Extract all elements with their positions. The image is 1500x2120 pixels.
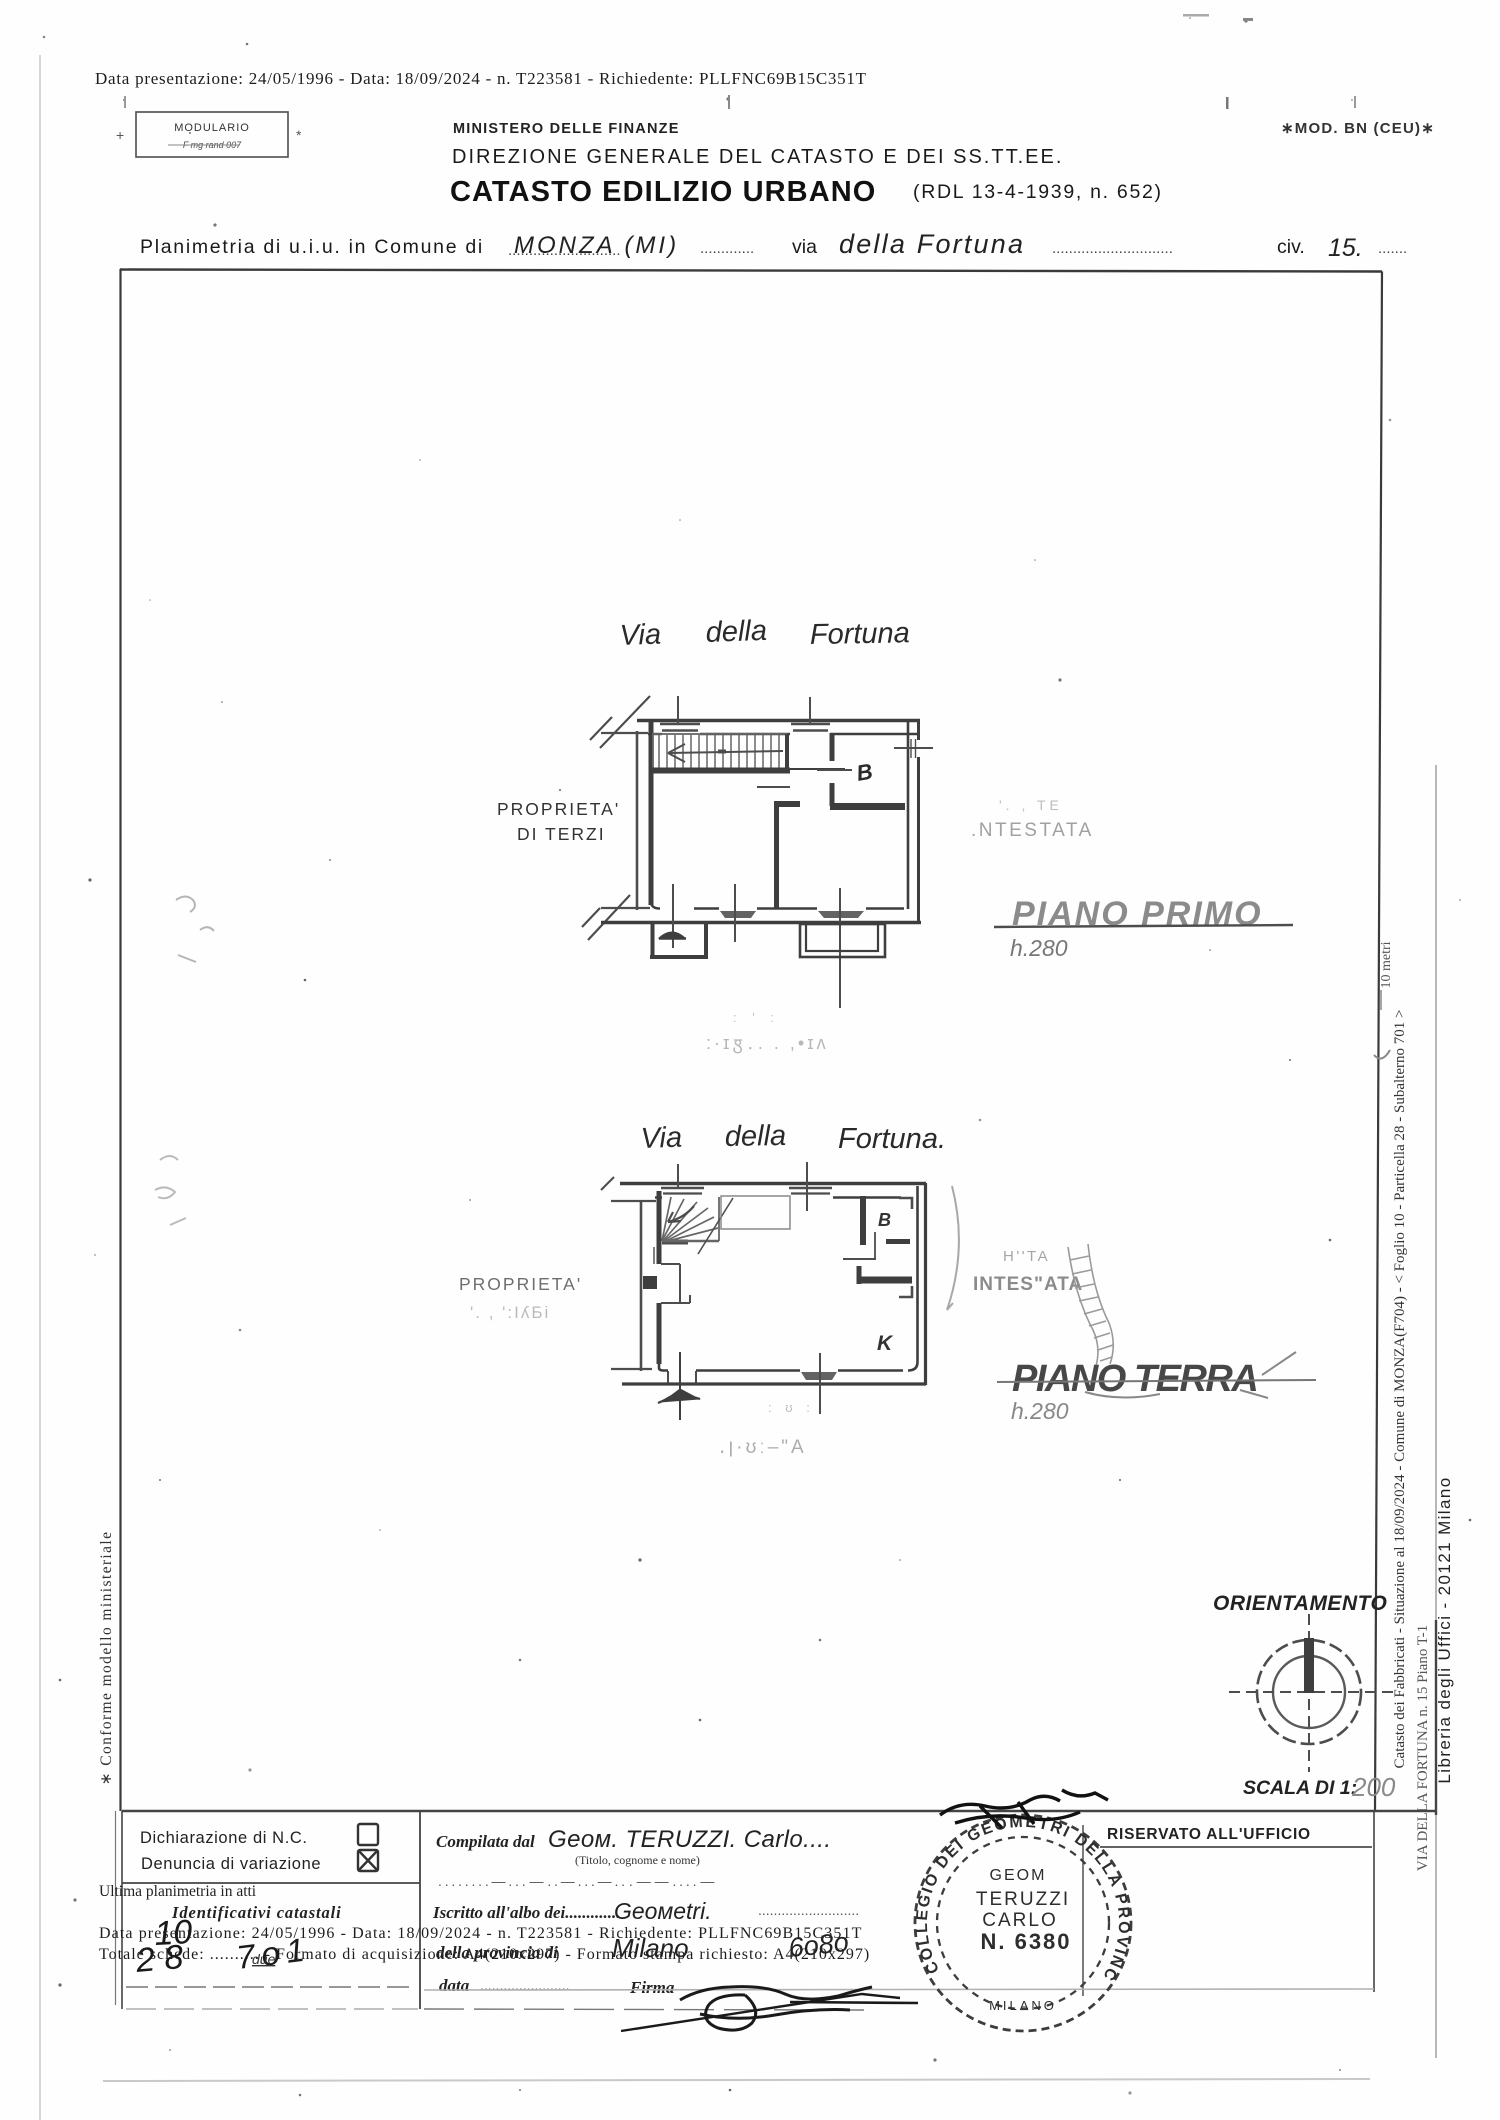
svg-text:Iscritto all'albo deі.........: Iscritto all'albo deі............. <box>432 1903 620 1922</box>
svg-text:Via: Via <box>619 619 661 652</box>
svg-text:della: della <box>725 1120 787 1153</box>
svg-text:PROPRIETA': PROPRIETA' <box>497 799 620 819</box>
svg-text:: ' :: : ' : <box>733 1010 780 1025</box>
svg-text:MINISTERO DELLE FINANZE: MINISTERO DELLE FINANZE <box>453 121 680 137</box>
svg-text:della provincia di: della provincia di <box>436 1943 558 1962</box>
svg-text:Ultima planimetria in atti: Ultima planimetria in atti <box>99 1883 257 1900</box>
svg-text:․ן·ʊː‒"A: ․ן·ʊː‒"A <box>719 1437 807 1458</box>
svg-text::·ɪꟑ․. . ,•ɪʌ: :·ɪꟑ․. . ,•ɪʌ <box>706 1033 829 1054</box>
svg-text:15.: 15. <box>1328 234 1363 262</box>
svg-text:. . . . . . . . — . . . — . .: . . . . . . . . — . . . — . . — . . . — … <box>438 1873 714 1889</box>
svg-text:data: data <box>439 1976 470 1995</box>
svg-text:.............: ............. <box>700 240 754 257</box>
svg-text:Milano: Milano <box>612 1933 689 1963</box>
svg-text:Gеом. TERUZZI. Carlo....: Gеом. TERUZZI. Carlo.... <box>548 1826 831 1853</box>
svg-text:CARLO: CARLO <box>982 1910 1057 1931</box>
svg-text:N. 6380: N. 6380 <box>980 1929 1071 1954</box>
svg-text:(RDL 13-4-1939, n. 652): (RDL 13-4-1939, n. 652) <box>913 181 1163 203</box>
svg-text:DI TERZI: DI TERZI <box>517 824 606 844</box>
svg-text:∗MOD. BN (CEU)∗: ∗MOD. BN (CEU)∗ <box>1281 120 1435 137</box>
svg-text:.......: ....... <box>1378 240 1407 257</box>
svg-text:Compilata dal: Compilata dal <box>436 1832 535 1851</box>
svg-text:Data presentazione: 24/05/1996: Data presentazione: 24/05/1996 - Data: 1… <box>99 1925 862 1942</box>
svg-text:Libreria degli Uffici - 20121: Libreria degli Uffici - 20121 Milano <box>1435 1476 1454 1783</box>
svg-text:Fortuna.: Fortuna. <box>838 1123 946 1155</box>
svg-text:della: della <box>705 615 767 649</box>
svg-text:via: via <box>792 236 817 258</box>
svg-text:∗ Conforme modello ministerial: ∗ Conforme modello ministeriale <box>98 1531 115 1786</box>
svg-text:(Titolo, cognome e nome): (Titolo, cognome e nome) <box>575 1853 700 1867</box>
svg-text:PIANO TERRA: PIANO TERRA <box>1012 1358 1257 1400</box>
svg-text:'. , TE: '. , TE <box>999 797 1063 813</box>
svg-text:Catasto dei Fabbricati - Situa: Catasto dei Fabbricati - Situazione al 1… <box>1392 1010 1408 1769</box>
svg-text:due: due <box>252 1951 276 1967</box>
svg-text:Via: Via <box>640 1122 682 1155</box>
svg-text:MODULARIO: MODULARIO <box>174 122 250 134</box>
svg-text:PROPRIETA': PROPRIETA' <box>459 1274 582 1294</box>
svg-text:200: 200 <box>1351 1772 1396 1802</box>
svg-text:INTES"ATA: INTES"ATA <box>973 1274 1083 1295</box>
svg-text:2 8: 2 8 <box>133 1938 184 1980</box>
svg-text:Fortuna: Fortuna <box>810 617 910 651</box>
svg-text:.NTESTATA: .NTESTATA <box>971 820 1094 841</box>
svg-text:Η''TA: Η''TA <box>1003 1248 1050 1265</box>
svg-text:della Fortuna: della Fortuna <box>839 229 1025 259</box>
svg-text:RISERVATO ALL'UFFICIO: RISERVATO ALL'UFFICIO <box>1107 1826 1311 1843</box>
svg-text:..........................: .......................... <box>758 1902 859 1918</box>
svg-text:MILANO: MILANO <box>989 1998 1057 2013</box>
svg-text:: ʊ :: : ʊ : <box>768 1400 815 1415</box>
svg-text:ORIENTAMENTO: ORIENTAMENTO <box>1213 1592 1387 1615</box>
svg-text:TERUZZI: TERUZZI <box>976 1889 1070 1910</box>
svg-text:6о8о: 6о8о <box>787 1927 850 1963</box>
svg-text:SCALA DI 1:: SCALA DI 1: <box>1243 1777 1357 1799</box>
svg-text:'. , ':ІʎБі: '. , ':ІʎБі <box>470 1303 550 1322</box>
svg-text:Data presentazione: 24/05/1996: Data presentazione: 24/05/1996 - Data: 1… <box>95 69 867 88</box>
svg-text:civ.: civ. <box>1277 236 1305 258</box>
svg-text:h.280: h.280 <box>1011 1398 1069 1424</box>
svg-text:CATASTO EDILIZIO URBANO: CATASTO EDILIZIO URBANO <box>450 176 876 208</box>
svg-text:K: K <box>877 1332 894 1355</box>
svg-text:Planimetria di u.i.u. in Comun: Planimetria di u.i.u. in Comune di <box>140 236 484 258</box>
svg-text:10 metri: 10 metri <box>1379 941 1394 988</box>
svg-text:.............................: ............................. <box>1052 240 1173 257</box>
svg-text:B: B <box>878 1210 891 1230</box>
svg-text:*: * <box>296 127 302 143</box>
svg-text:GEOM: GEOM <box>990 1867 1047 1884</box>
svg-text:VIA DELLA FORTUNA n. 15 Piano: VIA DELLA FORTUNA n. 15 Piano T-1 <box>1415 1625 1431 1871</box>
svg-text:+: + <box>116 127 124 143</box>
svg-text:Denuncia di variazione: Denuncia di variazione <box>141 1855 321 1873</box>
svg-text:h.280: h.280 <box>1010 935 1068 961</box>
svg-text:DIREZIONE GENERALE DEL CATASTO: DIREZIONE GENERALE DEL CATASTO E DEI SS.… <box>452 146 1063 168</box>
svg-text:Dichiarazione di N.C.: Dichiarazione di N.C. <box>140 1829 308 1847</box>
svg-text:Gеомеtri.: Gеомеtri. <box>614 1898 712 1924</box>
svg-text:Identificativi catastali: Identificativi catastali <box>171 1903 342 1922</box>
svg-text:MONZA (MI): MONZA (MI) <box>514 232 679 259</box>
svg-text:Firma: Firma <box>629 1978 675 1997</box>
